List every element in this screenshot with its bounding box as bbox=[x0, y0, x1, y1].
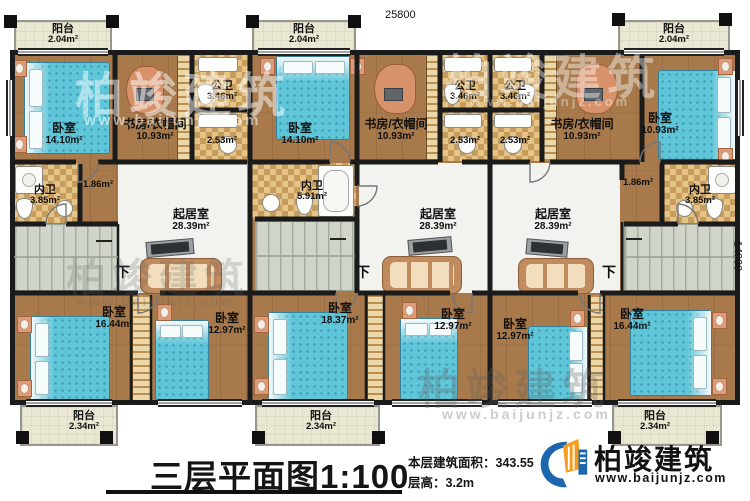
computer-monitor bbox=[384, 88, 403, 101]
room-label-u1-bedroom-b1: 卧室16.44m² bbox=[95, 306, 132, 331]
column-marker bbox=[4, 15, 17, 28]
room-label-u3-ensuite: 内卫3.85m² bbox=[685, 184, 715, 207]
dimension-right: 14000 bbox=[731, 241, 743, 272]
room-label-u2-study: 书房/衣帽间10.93m² bbox=[364, 118, 427, 143]
room-label-u2-living: 起居室28.39m² bbox=[419, 208, 456, 233]
room-label-u2-bath-public: 公卫3.46m² bbox=[450, 80, 480, 103]
computer-monitor bbox=[136, 88, 154, 101]
dimension-top: 25800 bbox=[385, 9, 416, 21]
room-label-u2-bedroom-main: 卧室14.10m² bbox=[281, 122, 318, 147]
room-label-u2-bedroom-b2: 卧室12.97m² bbox=[434, 308, 471, 333]
room-label-u2-ensuite: 内卫5.91m² bbox=[297, 180, 327, 203]
computer-monitor bbox=[584, 88, 603, 101]
balcony-slider-window bbox=[618, 399, 716, 407]
window bbox=[6, 80, 14, 136]
room-label-u3-balcony-bottom: 阳台2.34m² bbox=[640, 410, 670, 433]
brand-logo-icon bbox=[534, 434, 592, 496]
room-label-u3-balcony-top: 阳台2.04m² bbox=[659, 23, 689, 46]
window bbox=[392, 399, 482, 407]
room-label-u3-hall: 1.86m² bbox=[623, 178, 653, 189]
room-label-u1-balcony-bottom: 阳台2.34m² bbox=[69, 410, 99, 433]
column-marker bbox=[16, 431, 29, 444]
brand-url: www.baijunjz.com bbox=[595, 471, 727, 485]
room-label-u1-bath-public: 公卫3.46m² bbox=[207, 80, 237, 103]
column-marker bbox=[252, 431, 265, 444]
stairs-down-label: 下 bbox=[356, 262, 370, 282]
column-marker bbox=[372, 431, 385, 444]
title-underline bbox=[106, 490, 402, 494]
room-label-u3-bath-small: 2.53m² bbox=[500, 136, 530, 147]
room-label-u1-ensuite: 内卫3.85m² bbox=[30, 184, 60, 207]
room-label-u3-living: 起居室28.39m² bbox=[534, 208, 571, 233]
room-label-u3-study: 书房/衣帽间10.93m² bbox=[550, 118, 613, 143]
room-label-u3-bath-public: 公卫3.46m² bbox=[500, 80, 530, 103]
room-label-u2-bedroom-b1: 卧室18.37m² bbox=[321, 302, 358, 327]
floor-area-text: 本层建筑面积：343.55 bbox=[408, 452, 534, 471]
column-marker bbox=[348, 15, 361, 28]
column-marker bbox=[612, 13, 625, 26]
room-label-u1-balcony-top: 阳台2.04m² bbox=[48, 23, 78, 46]
floor-plan: 阳台2.04m² 阳台2.04m² 阳台2.04m² 卧室14.10m² 书房/… bbox=[0, 0, 750, 501]
column-marker bbox=[100, 431, 113, 444]
room-label-u2-balcony-top: 阳台2.04m² bbox=[289, 23, 319, 46]
floor-height-text: 层高：3.2m bbox=[408, 472, 474, 491]
column-marker bbox=[246, 15, 259, 28]
balcony-slider-window bbox=[262, 399, 374, 407]
column-marker bbox=[719, 13, 732, 26]
room-label-u3-bedroom-b2: 卧室16.44m² bbox=[613, 308, 650, 333]
room-label-u1-bedroom-b2: 卧室12.97m² bbox=[208, 312, 245, 337]
balcony-slider-window bbox=[26, 399, 112, 407]
room-label-u1-bedroom-main: 卧室14.10m² bbox=[45, 122, 82, 147]
room-label-u1-study: 书房/衣帽间10.93m² bbox=[123, 118, 186, 143]
room-label-u3-bedroom-main: 卧室10.93m² bbox=[641, 112, 678, 137]
window bbox=[736, 80, 744, 136]
balcony-slider-window bbox=[18, 48, 108, 56]
balcony-slider-window bbox=[258, 48, 350, 56]
room-label-u2-bath-small: 2.53m² bbox=[450, 136, 480, 147]
stairs-down-label: 下 bbox=[116, 262, 130, 282]
room-label-u1-bath-small: 2.53m² bbox=[207, 136, 237, 147]
walls-layer bbox=[0, 0, 750, 501]
stairs-down-label: 下 bbox=[602, 262, 616, 282]
room-label-u2-balcony-bottom: 阳台2.34m² bbox=[306, 410, 336, 433]
balcony-slider-window bbox=[624, 48, 724, 56]
room-label-u1-living: 起居室28.39m² bbox=[172, 208, 209, 233]
window bbox=[498, 399, 592, 407]
column-marker bbox=[106, 15, 119, 28]
room-label-u3-bedroom-b1: 卧室12.97m² bbox=[496, 318, 533, 343]
window bbox=[158, 399, 242, 407]
room-label-u1-hall: 1.86m² bbox=[83, 180, 113, 191]
